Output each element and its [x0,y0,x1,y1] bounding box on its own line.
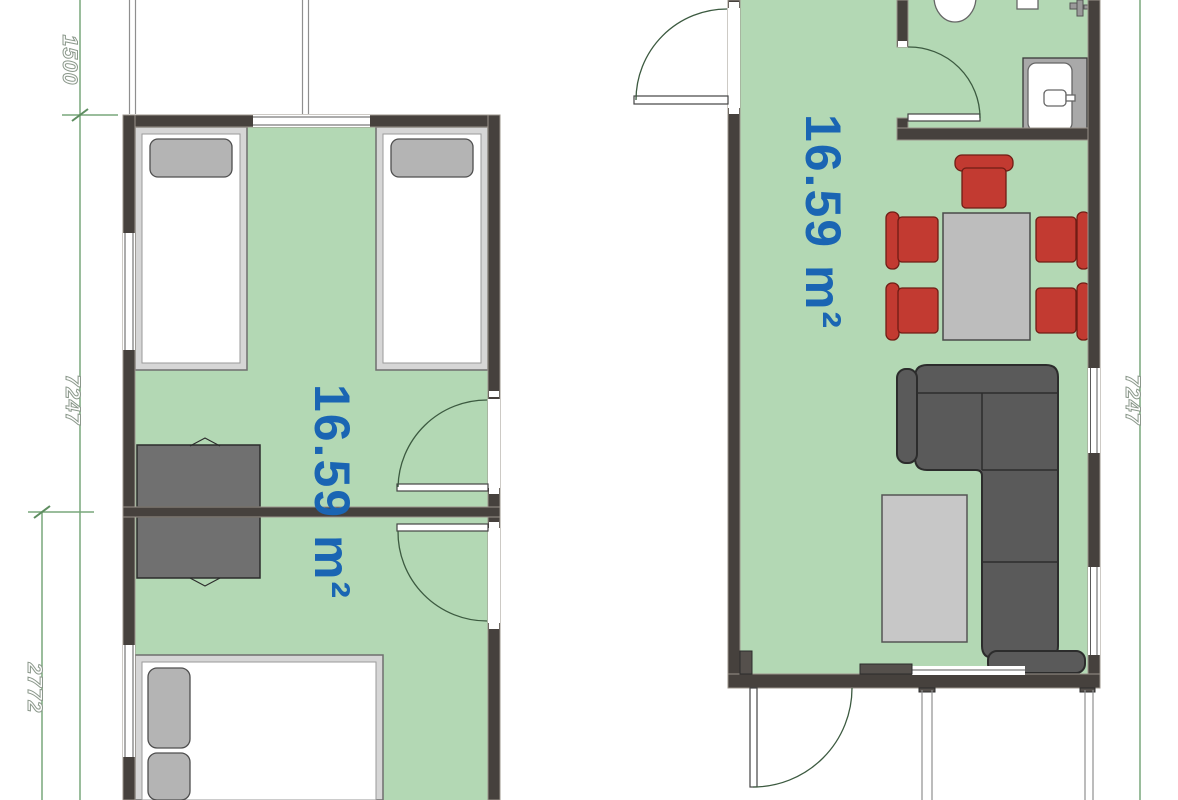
right-unit: 16.59 m² [634,0,1100,800]
area-label-left: 16.59 m² [304,384,360,600]
dining-chair-left-2 [886,283,938,340]
wardrobe-upper [137,445,260,507]
dimension-label-2772: 2772 [23,662,46,714]
dining-table [943,213,1030,340]
dining-chair-right-1 [1036,212,1090,269]
dining-chair-top [955,155,1013,208]
door-leaf [750,688,757,787]
dining-chair-left-1 [886,212,938,269]
patio-door [750,688,852,787]
wall-corner-stub [740,651,752,674]
door-swing-arc [753,688,852,787]
wall-bottom [728,674,1100,688]
window-left-upper [123,233,135,350]
pillow [150,139,232,177]
door-leaf [397,524,488,531]
window-top [253,115,370,127]
sliding-panel [860,664,912,674]
entrance-door [634,2,740,114]
dimension-label-7247-left: 7247 [61,375,84,426]
window-right-upper [1088,368,1100,453]
sofa-armrest-left [897,369,917,463]
dining-chair-right-2 [1036,283,1090,340]
pillow [391,139,473,177]
bathroom-partition [897,0,908,47]
coffee-table [882,495,967,642]
dimension-label-7247-right: 7247 [1121,375,1144,426]
window-right-lower [1088,567,1100,655]
pillow [148,753,190,800]
door-leaf [397,484,488,491]
double-bed [135,655,383,800]
terrace-rails-bottom [919,688,1095,800]
bathroom-wall [897,128,1088,140]
floor-plan-canvas: 1500 7247 2772 7247 [0,0,1178,800]
area-label-right: 16.59 m² [795,114,851,330]
sink-faucet [1044,90,1066,106]
window-left-lower [123,645,135,757]
patio-opening [912,666,1025,675]
pillow [148,668,190,748]
left-unit: 16.59 m² [123,115,500,800]
door-leaf [634,96,728,104]
door-leaf [908,114,980,121]
single-bed-right [376,127,488,370]
door-swing-arc [636,9,727,100]
wardrobe-lower [137,517,260,578]
cistern-shelf [1017,0,1038,9]
dimension-label-1500: 1500 [58,35,81,86]
terrace-rails-top [130,0,309,114]
sink [1023,58,1087,136]
single-bed-left [135,127,247,370]
